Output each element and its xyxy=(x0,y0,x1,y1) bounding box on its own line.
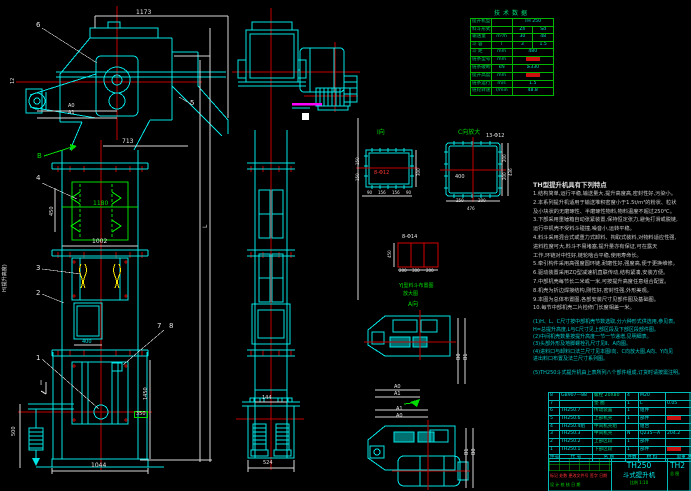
bom-row: 8GB907—88螺栓 20X804M20 xyxy=(549,393,691,401)
feature-line: 8.机壳为折边焊接结构,刚性好,密封性强,外形美观。 xyxy=(533,287,691,296)
spec-table: 技术数据 提升机型号TH 250料斗形式ZhSd输送量m³/h3048斗 容l3… xyxy=(470,8,554,96)
dim-label: 524 xyxy=(263,461,273,466)
feature-line: 2.本系列提升机适用于输送堆积密度小于1.5t/m³的粉状、粒状 xyxy=(533,199,691,208)
dim-label: 1180 xyxy=(93,201,108,207)
dim-label: 1 xyxy=(36,355,40,362)
redacted-value xyxy=(667,447,681,451)
dim-label: 8 xyxy=(169,323,173,330)
dim-label: L xyxy=(203,225,209,228)
bom-table: 8GB907—88螺栓 20X804M207垫 圈1L0.056TH250.7传… xyxy=(548,392,691,462)
dim-label: 1173 xyxy=(136,10,151,16)
feature-line: H=总提升高度,L与C尺寸见上部区段及下部区段部件图。 xyxy=(533,327,691,334)
dim-label: 90 xyxy=(367,191,372,195)
bom-row: 4TH250.4组中间机壳组组合 xyxy=(549,423,691,431)
dim-label: 150 xyxy=(356,173,360,181)
feature-line: 进出料口布置及法兰尺寸系列图。 xyxy=(533,356,691,363)
feature-line: 4.料斗采用混合式或重力式卸料、掏取式装料,对物料适应性强, xyxy=(533,234,691,243)
dim-label: 200 xyxy=(503,154,507,162)
dim-label: 2 xyxy=(36,290,40,297)
title-block-center: TH250 斗式提升机 比例 1:10 xyxy=(611,459,668,491)
spec-row: 链条运行速度m/s1.5 xyxy=(471,80,554,88)
spec-row: 链条破断拉力kN≥330 xyxy=(471,65,554,73)
spec-row: 提升高度mm xyxy=(471,72,554,80)
feature-line: 10.每节中部机壳二片检修门长度相差一米。 xyxy=(533,304,691,313)
dim-label: 8-Φ12 xyxy=(374,171,389,176)
dim-label: 放大图 xyxy=(403,292,418,297)
dim-label: B xyxy=(37,153,42,160)
dim-label: 156 xyxy=(392,191,400,195)
bom-row: 6TH250.7传动装置1组件 xyxy=(549,408,691,416)
redacted-value xyxy=(526,73,540,77)
dim-label: A0 xyxy=(68,104,75,109)
dim-label: 13-Φ12 xyxy=(486,134,504,139)
dim-label: A0 xyxy=(394,385,401,390)
dim-label: 200 xyxy=(426,269,434,273)
dim-label: H(提升高度) xyxy=(3,264,8,292)
revision-block: 标记 处数 更改文件号 签字 日期 设 计 校 核 日 期 xyxy=(549,459,612,491)
cad-sheet: 1173612A0A15B71344501180100232H(提升高度)L78… xyxy=(0,0,691,491)
dim-label: I xyxy=(40,380,42,387)
dim-label: 3 xyxy=(36,265,40,272)
dim-label: 7 xyxy=(157,323,161,330)
bom-table-body: 8GB907—88螺栓 20X804M207垫 圈1L0.056TH250.7传… xyxy=(549,393,691,462)
feature-line: 9.本图为总体布置图,各部安装尺寸见部件图及基础图。 xyxy=(533,296,691,305)
bom-row: 7垫 圈1L0.05 xyxy=(549,400,691,408)
dim-label: A1 xyxy=(68,111,75,116)
feature-line: 7.中部机壳每节长二米或一米,可按提升高度任意组合配置。 xyxy=(533,278,691,287)
revision-row-label: 标记 处数 更改文件号 签字 日期 xyxy=(550,473,607,479)
dim-label: 150 xyxy=(356,157,360,165)
dim-label: 400 xyxy=(82,340,92,345)
feature-line: 进料粒度可大,料斗不易堵塞,提升量亦有保证,可在露天 xyxy=(533,243,691,252)
dim-label: 6 xyxy=(36,22,40,29)
feature-notes-lines: 1.结构简单,运行平稳,输送量大,提升高度高,密封性好,污染小。2.本系列提升机… xyxy=(533,190,691,377)
dim-label: B0 xyxy=(472,448,477,455)
dim-label: 500 xyxy=(12,426,17,436)
dim-label: 450 xyxy=(50,206,55,216)
revision-grid xyxy=(549,459,611,471)
dim-label: 350 xyxy=(134,411,148,418)
spec-row: 斗 容l31.5 xyxy=(471,41,554,49)
feature-line: 6.驱动装置采用ZQ型减速机直联传动,结构紧凑,安装方便。 xyxy=(533,269,691,278)
dim-label: 90 xyxy=(406,191,411,195)
dim-label: 300 xyxy=(412,269,420,273)
feature-line: (3)头部外形及地脚螺栓孔尺寸见Ⅱ、A向图。 xyxy=(533,341,691,348)
model-number: TH250 xyxy=(611,461,667,471)
right-model-number: TH2 xyxy=(667,461,691,471)
spec-table-title: 技术数据 xyxy=(470,8,554,17)
bom-row: 5TH250.6上部机壳1部件 xyxy=(549,415,691,423)
feature-line: 及小块状的无磨琢性、半磨琢性物料,物料温度不超过250℃。 xyxy=(533,208,691,217)
feature-line: 5.牵引构件采用高强度圆环链,耐磨性好,强度高,便于更换维修。 xyxy=(533,260,691,269)
dim-label: 200 xyxy=(399,269,407,273)
spec-row: 料斗形式ZhSd xyxy=(471,26,554,34)
dim-label: 436 xyxy=(509,168,513,176)
dim-label: A1 xyxy=(394,392,401,397)
feature-line: 工作,环链对中性好,链轮啮合平稳,使用寿命长。 xyxy=(533,252,691,261)
dim-label: 476 xyxy=(467,207,475,211)
dim-label: B1 xyxy=(464,353,469,360)
dim-label: 12 xyxy=(11,78,16,84)
dim-label: A1 xyxy=(396,407,403,412)
redacted-value xyxy=(526,57,540,61)
feature-line: (5)TH250斗式提升机由上表所列八个部件组成,订货时请按需注明。 xyxy=(533,370,691,377)
feature-line: (1)H、L、C尺寸按中部机壳节数选取,分六种形式供选用,参见表。 xyxy=(533,319,691,326)
dim-label: 1002 xyxy=(92,239,107,245)
right-note: 总 图 xyxy=(667,471,691,477)
bom-row: 2TH250.2上部区段1部件 xyxy=(549,439,691,447)
dim-label: A0 xyxy=(396,414,403,419)
bom-row: 3TH250.3中间机壳NQ235—A204.2 xyxy=(549,431,691,439)
feature-line: 1.结构简单,运行平稳,输送量大,提升高度高,密封性好,污染小。 xyxy=(533,190,691,199)
dim-label: 200 xyxy=(478,199,486,203)
dim-label: 200 xyxy=(503,172,507,180)
spec-row: 提升机型号TH 250 xyxy=(471,19,554,27)
dim-label: 1044 xyxy=(91,463,106,469)
dim-label: 250 xyxy=(456,199,464,203)
dim-label: 300 xyxy=(417,168,421,176)
signature-row-label: 设 计 校 核 日 期 xyxy=(550,482,580,488)
spec-row: 链轮转速r/min48.8 xyxy=(471,88,554,96)
redacted-value xyxy=(667,416,681,420)
spec-table-body: 提升机型号TH 250料斗形式ZhSd输送量m³/h3048斗 容l31.5斗 … xyxy=(471,19,554,96)
dim-label: 5 xyxy=(190,100,194,107)
feature-line: 3.下部采用重锤箱自动张紧装置,保持恒定张力,避免打滑或脱链, xyxy=(533,216,691,225)
title-block-right: TH2 总 图 xyxy=(667,459,691,491)
feature-notes: TH型提升机具有下列特点 1.结构简单,运行平稳,输送量大,提升高度高,密封性好… xyxy=(533,180,691,377)
bom-row: 1TH250.1下部区段1部件 xyxy=(549,446,691,454)
spec-row: 输送量m³/h3048 xyxy=(471,34,554,42)
dim-label: C向放大 xyxy=(458,130,480,136)
dim-label: 400 xyxy=(455,175,465,180)
dim-label: I向 xyxy=(377,130,385,136)
spec-row: 链条型号mm xyxy=(471,56,554,64)
title-block: 标记 处数 更改文件号 签字 日期 设 计 校 核 日 期 TH250 斗式提升… xyxy=(548,458,691,491)
dim-label: 713 xyxy=(122,139,133,145)
dim-label: 8-Φ14 xyxy=(402,235,417,240)
spec-row: 斗 距mm480 xyxy=(471,49,554,57)
dim-label: 144 xyxy=(262,396,272,401)
feature-notes-title: TH型提升机具有下列特点 xyxy=(533,180,691,190)
dim-label: 1450 xyxy=(144,387,149,400)
dim-label: 4 xyxy=(36,175,40,182)
dim-label: 450 xyxy=(388,250,392,258)
machine-name: 斗式提升机 xyxy=(611,471,667,480)
drawing-scale: 比例 1:10 xyxy=(611,480,667,486)
dim-label: 156 xyxy=(378,191,386,195)
dim-label: B1 xyxy=(465,448,470,455)
feature-line: 运行中机壳不受料斗碰撞,噪音小,运转平稳。 xyxy=(533,225,691,234)
dim-label: B0 xyxy=(457,353,462,360)
dim-label: YJ型料斗布置图 xyxy=(399,284,434,289)
dim-label: A向 xyxy=(408,302,418,308)
